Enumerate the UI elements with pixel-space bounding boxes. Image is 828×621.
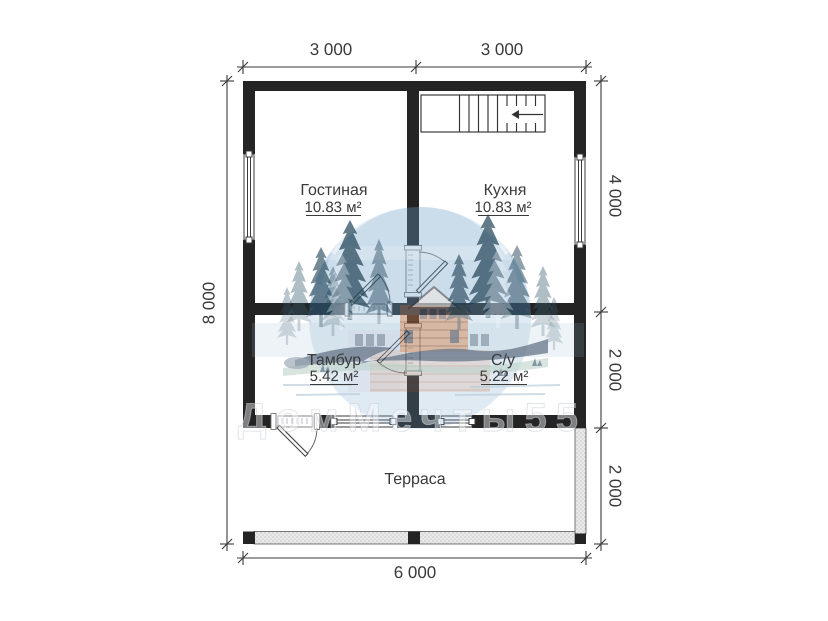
svg-text:С/у: С/у (491, 352, 515, 369)
svg-text:10.83 м²: 10.83 м² (474, 199, 531, 216)
svg-text:4 000: 4 000 (606, 175, 625, 218)
svg-text:5.22 м²: 5.22 м² (480, 368, 529, 385)
svg-text:6 000: 6 000 (394, 563, 437, 582)
svg-text:Терраса: Терраса (384, 471, 445, 488)
svg-text:2 000: 2 000 (606, 465, 625, 508)
svg-text:5.42 м²: 5.42 м² (310, 368, 359, 385)
svg-text:8 000: 8 000 (199, 282, 218, 325)
svg-text:Кухня: Кухня (484, 182, 527, 199)
svg-text:Гостиная: Гостиная (300, 182, 367, 199)
svg-text:Тамбур: Тамбур (307, 352, 361, 369)
svg-text:3 000: 3 000 (481, 40, 524, 59)
svg-text:2 000: 2 000 (606, 349, 625, 392)
svg-text:ДомМечты55: ДомМечты55 (238, 396, 578, 440)
svg-text:3 000: 3 000 (310, 40, 353, 59)
svg-text:10.83 м²: 10.83 м² (304, 199, 361, 216)
